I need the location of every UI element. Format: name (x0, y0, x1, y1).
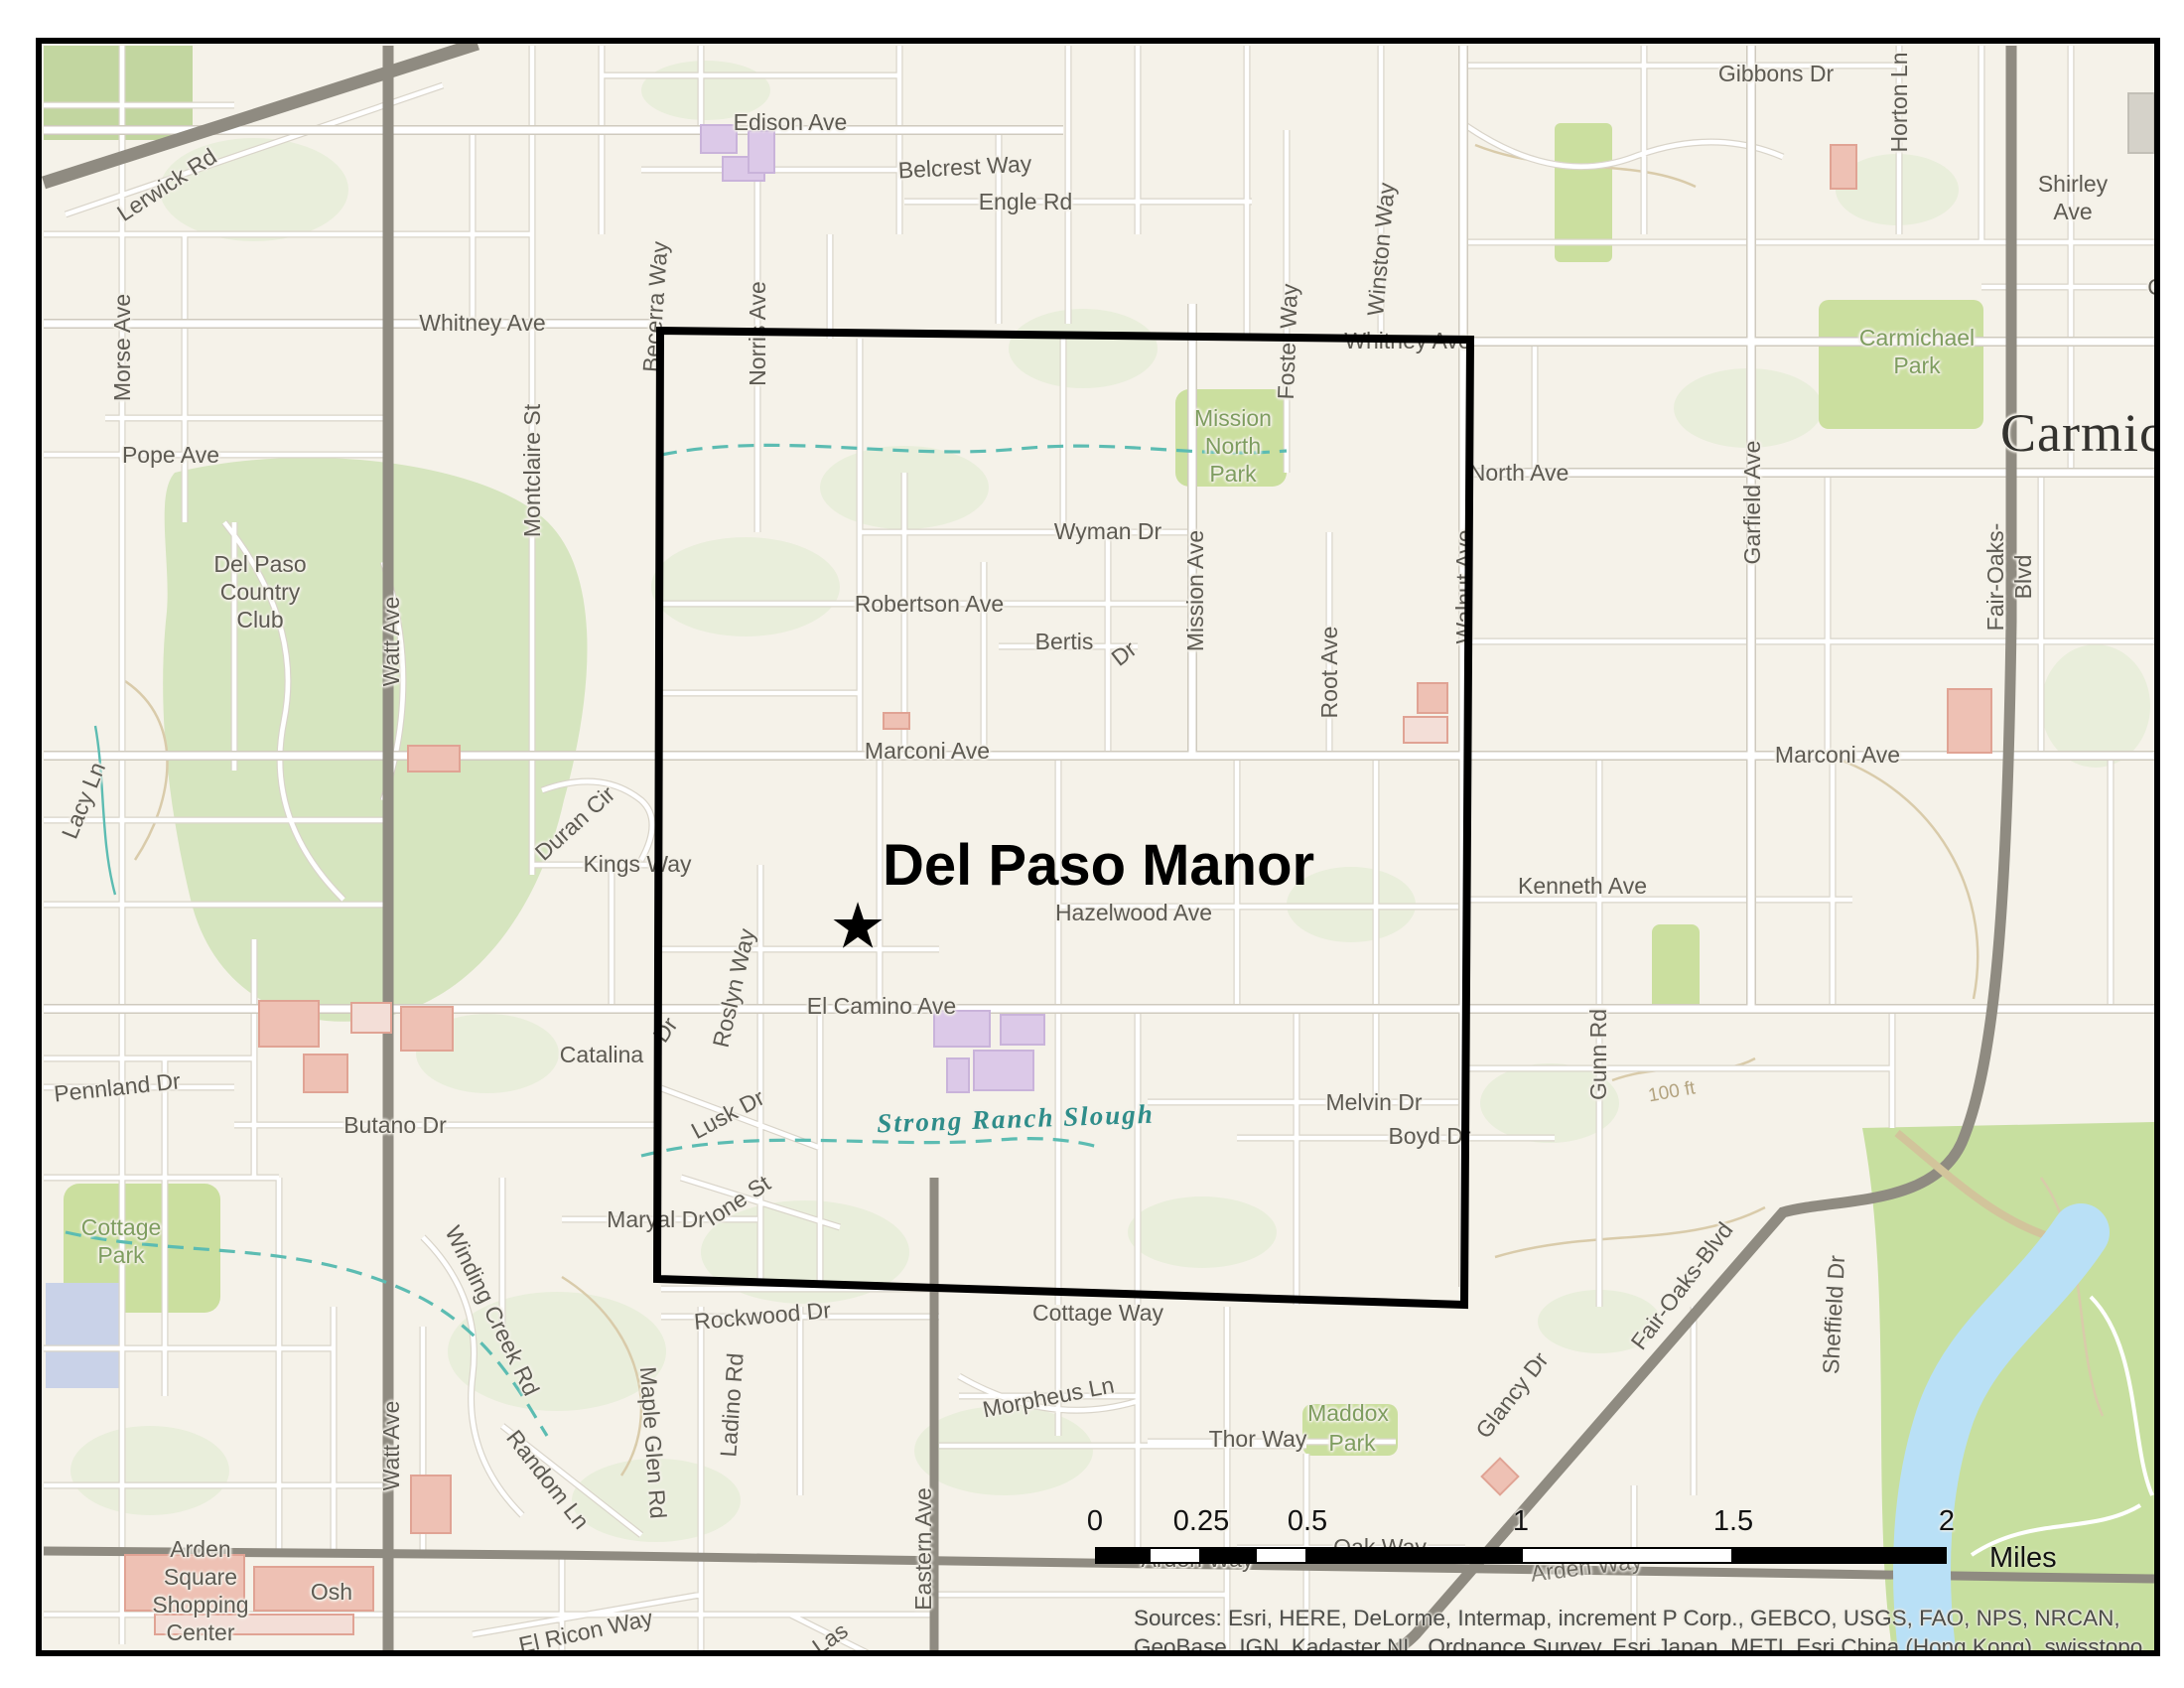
attribution-line-1: Sources: Esri, HERE, DeLorme, Intermap, … (1134, 1604, 2160, 1632)
street-label-horton-ln: Horton Ln (1885, 52, 1913, 152)
street-label-grant: Grant (2147, 273, 2160, 301)
street-label-gunn-rd: Gunn Rd (1584, 1009, 1612, 1100)
street-label-watt-ave-south: Watt Ave (377, 1401, 405, 1491)
street-label-hazelwood-ave: Hazelwood Ave (1055, 899, 1212, 926)
attribution-text: Sources: Esri, HERE, DeLorme, Intermap, … (1134, 1604, 2160, 1656)
scale-bar-segment (1521, 1547, 1733, 1564)
street-label-el-camino-ave: El Camino Ave (807, 992, 956, 1020)
street-label-wyman-dr: Wyman Dr (1054, 517, 1161, 545)
street-label-watt-ave-north: Watt Ave (377, 597, 405, 687)
scale-tick-label: 0.25 (1173, 1505, 1229, 1538)
street-label-roslyn-way: Roslyn Way (707, 925, 761, 1050)
street-label-rockwood-dr: Rockwood Dr (693, 1296, 832, 1336)
street-label-bertis-dr-suffix: Dr (1106, 634, 1142, 671)
street-label-morpheus-ln: Morpheus Ln (980, 1370, 1116, 1423)
street-label-el-ricon-way: El Ricon Way (516, 1604, 655, 1656)
street-label-random-ln: Random Ln (500, 1425, 595, 1535)
street-label-catalina: Catalina (560, 1041, 643, 1068)
street-label-glancy-dr: Glancy Dr (1469, 1346, 1554, 1444)
region-title: Del Paso Manor (883, 832, 1314, 899)
scale-bar-segment (1307, 1547, 1521, 1564)
street-label-pennland-dr: Pennland Dr (53, 1066, 182, 1107)
street-label-marconi-ave-west: Marconi Ave (865, 737, 990, 765)
street-label-butano-dr: Butano Dr (343, 1111, 447, 1139)
street-label-fair-oaks-blvd-north: Fair-Oaks-Blvd (1981, 504, 2037, 649)
poi-label-arden-square: Arden Square Shopping Center (152, 1535, 248, 1646)
street-label-whitney-ave-east: Whitney Ave (1344, 327, 1470, 354)
street-label-ione-st: Ione St (700, 1169, 775, 1231)
street-label-eastern-ave: Eastern Ave (909, 1487, 937, 1611)
street-label-marconi-ave-east: Marconi Ave (1775, 741, 1900, 769)
scale-tick-label: 1.5 (1713, 1505, 1753, 1538)
street-label-edison-ave: Edison Ave (734, 108, 848, 136)
street-label-robertson-ave: Robertson Ave (855, 590, 1004, 618)
street-label-becerra-way: Becerra Way (636, 240, 673, 373)
park-label-maddox: Maddox (1307, 1399, 1389, 1427)
scale-tick-label: 2 (1939, 1505, 1955, 1538)
scale-tick-label: 1 (1513, 1505, 1529, 1538)
park-label-mission-north-park: Mission North Park (1194, 404, 1272, 488)
street-label-thor-way: Thor Way (1209, 1425, 1307, 1453)
street-label-kenneth-ave: Kenneth Ave (1518, 872, 1647, 900)
street-label-montclaire-st: Montclaire St (518, 404, 546, 537)
park-label-maddox-park-suffix: Park (1328, 1429, 1375, 1457)
street-label-whitney-ave-west: Whitney Ave (419, 309, 545, 337)
street-label-boyd-dr: Boyd Dr (1388, 1122, 1470, 1150)
scale-tick-label: 0.5 (1288, 1505, 1327, 1538)
street-label-bertis: Bertis (1035, 628, 1094, 655)
street-label-belcrest-way: Belcrest Way (897, 149, 1032, 184)
street-label-kings-way: Kings Way (583, 850, 691, 878)
scale-bar-segment (1733, 1547, 1947, 1564)
star-icon: ★ (829, 894, 886, 957)
contour-label-100ft: 100 ft (1647, 1076, 1698, 1107)
street-label-morse-ave: Morse Ave (108, 294, 136, 401)
scale-bar-segment (1255, 1547, 1307, 1564)
street-label-north-ave: North Ave (1469, 459, 1570, 487)
scale-bar-segment (1149, 1547, 1201, 1564)
street-label-lerwick-rd: Lerwick Rd (112, 142, 222, 226)
place-label-carmichael: Carmicha (2000, 401, 2160, 467)
scale-bar-segment (1095, 1547, 1149, 1564)
street-label-maryal-dr: Maryal Dr (607, 1205, 706, 1233)
street-label-melvin-dr: Melvin Dr (1325, 1088, 1422, 1116)
poi-label-del-paso-country-club: Del Paso Country Club (213, 550, 306, 633)
street-label-mission-ave: Mission Ave (1181, 530, 1209, 651)
street-label-cottage-way: Cottage Way (1032, 1299, 1163, 1327)
scale-bar-segment (1201, 1547, 1255, 1564)
street-label-lacy-ln: Lacy Ln (56, 758, 111, 842)
attribution-line-2: GeoBase, IGN, Kadaster NL, Ordnance Surv… (1134, 1632, 2160, 1656)
street-label-engle-rd: Engle Rd (979, 188, 1073, 215)
street-label-winding-creek-rd: Winding Creek Rd (439, 1221, 545, 1400)
street-label-gibbons-dr: Gibbons Dr (1718, 60, 1834, 87)
street-label-fair-oaks-blvd-diag: Fair-Oaks-Blvd (1625, 1216, 1739, 1354)
map-page: Edison AveBelcrest WayEngle RdWhitney Av… (0, 0, 2184, 1688)
street-label-sheffield-dr: Sheffield Dr (1817, 1254, 1850, 1374)
street-label-maple-glen-rd: Maple Glen Rd (634, 1365, 673, 1519)
street-label-garfield-ave: Garfield Ave (1738, 441, 1766, 565)
street-label-las: Las (807, 1617, 853, 1656)
street-label-ladino-rd: Ladino Rd (714, 1352, 749, 1459)
street-label-shirley-ave: Shirley Ave (2032, 170, 2114, 225)
park-label-cottage-park: Cottage Park (81, 1213, 162, 1269)
street-label-foster-way: Foster Way (1272, 283, 1303, 400)
street-label-catalina-dr-suffix: Dr (647, 1012, 684, 1048)
street-label-winston-way: Winston Way (1361, 182, 1401, 318)
map-viewport[interactable]: Edison AveBelcrest WayEngle RdWhitney Av… (36, 38, 2160, 1656)
scale-tick-label: 0 (1087, 1505, 1103, 1538)
park-label-carmichael-park: Carmichael Park (1859, 324, 1975, 379)
street-label-root-ave: Root Ave (1315, 627, 1343, 719)
street-label-walnut-ave: Walnut Ave (1450, 529, 1478, 643)
water-label-strong-ranch-slough: Strong Ranch Slough (877, 1098, 1156, 1141)
street-label-lusk-dr: Lusk Dr (686, 1083, 768, 1145)
scale-unit-label: Miles (1989, 1542, 2057, 1575)
street-label-norris-ave: Norris Ave (744, 281, 771, 386)
poi-label-osh: Osh (311, 1578, 352, 1606)
street-label-pope-ave: Pope Ave (122, 441, 219, 469)
